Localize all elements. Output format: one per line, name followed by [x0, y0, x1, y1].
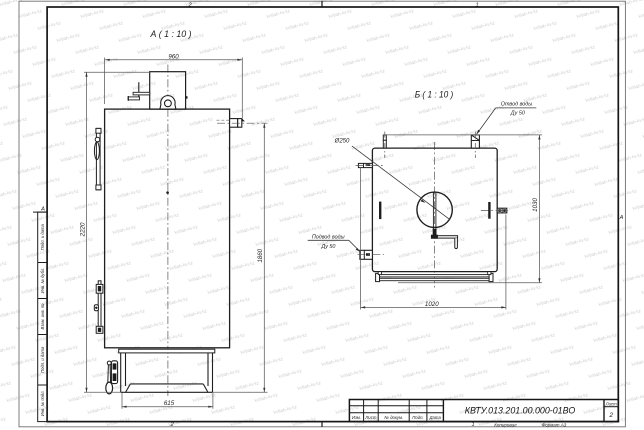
svg-text:Б ( 1 : 10 ): Б ( 1 : 10 ) [415, 88, 454, 99]
svg-text:Формат А3: Формат А3 [542, 422, 567, 427]
svg-text:Дата: Дата [429, 415, 442, 420]
svg-text:1030: 1030 [532, 198, 539, 212]
svg-text:Ø250: Ø250 [334, 139, 350, 145]
svg-text:Подп.: Подп. [412, 415, 423, 420]
svg-text:2220: 2220 [79, 222, 86, 237]
svg-text:№ докум.: № докум. [384, 415, 403, 420]
svg-text:А: А [619, 215, 624, 221]
svg-text:2: 2 [608, 412, 613, 419]
svg-text:Лист: Лист [364, 415, 376, 420]
svg-text:1020: 1020 [425, 301, 439, 308]
svg-text:КВТУ.013.201.00.000-01ВО: КВТУ.013.201.00.000-01ВО [465, 406, 576, 416]
svg-text:Отвод воды: Отвод воды [501, 101, 533, 107]
svg-text:1: 1 [471, 422, 474, 428]
svg-text:Взам. инв. №: Взам. инв. № [40, 303, 45, 329]
svg-text:1860: 1860 [257, 248, 264, 262]
svg-text:Подп. и дата: Подп. и дата [40, 346, 45, 373]
svg-text:Ду 50: Ду 50 [510, 111, 525, 117]
svg-text:Подп. и дата: Подп. и дата [40, 224, 45, 251]
svg-text:А ( 1 : 10 ): А ( 1 : 10 ) [150, 28, 192, 39]
svg-text:Изм.: Изм. [352, 415, 361, 420]
svg-text:Подвод воды: Подвод воды [312, 234, 345, 240]
svg-text:615: 615 [164, 400, 175, 407]
svg-text:Лист: Лист [605, 401, 617, 406]
svg-text:Инв. № дубл.: Инв. № дубл. [40, 268, 45, 294]
svg-text:960: 960 [168, 53, 179, 60]
svg-text:Инв. № подл.: Инв. № подл. [40, 390, 45, 416]
svg-text:Ду 50: Ду 50 [320, 244, 335, 250]
svg-text:1: 1 [475, 2, 478, 8]
svg-text:Копировал: Копировал [494, 422, 517, 427]
